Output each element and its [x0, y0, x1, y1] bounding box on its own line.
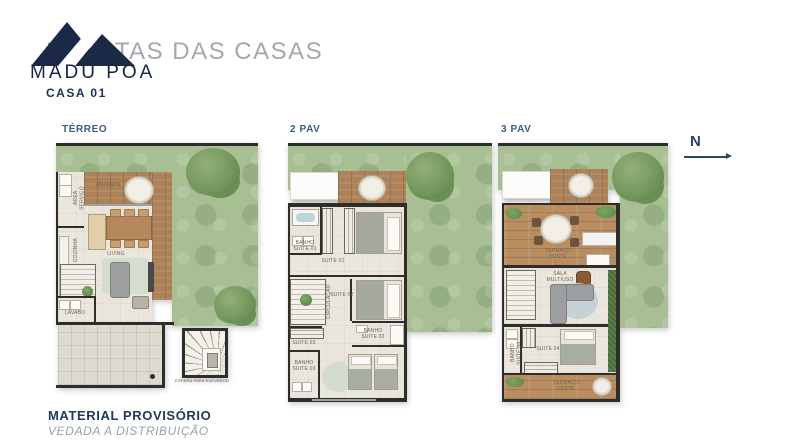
lavabo-sink	[59, 300, 70, 310]
dining-chair	[124, 209, 135, 217]
laundry-sink	[59, 185, 72, 197]
brand-name: MADU POA	[30, 62, 155, 84]
tv-console	[148, 262, 154, 292]
room-label-area-servico: ÁREA SERVIÇO	[73, 180, 81, 216]
plant	[300, 294, 312, 306]
tree	[214, 286, 256, 324]
shower	[390, 325, 404, 345]
window	[312, 399, 376, 401]
tree	[186, 148, 240, 196]
tree	[406, 152, 454, 200]
garage-floor	[58, 325, 162, 385]
terrace-chair	[532, 218, 541, 227]
kitchen-island	[88, 214, 106, 250]
wall	[58, 226, 84, 228]
room-label-suite-02: SUITE 02	[330, 292, 354, 298]
bed-suite-04	[560, 329, 596, 365]
room-label-elevator-note: ESPERA PARA ELEVADOR	[168, 378, 236, 383]
round-table	[124, 176, 154, 204]
plantas-page: PLANTAS DAS CASAS MADU POA CASA 01 TÉRRE…	[0, 0, 785, 445]
bed-suite-01	[356, 212, 402, 254]
unit-label: CASA 01	[46, 86, 107, 100]
room-label-circulacao: CIRCULAÇÃO	[326, 284, 334, 320]
wall	[56, 172, 58, 325]
wall	[352, 345, 404, 347]
dining-table	[106, 216, 152, 240]
room-label-banho-suite-03: BANHO SUITE 03	[290, 360, 318, 373]
armchair	[132, 296, 149, 309]
wall	[94, 296, 96, 322]
wall	[502, 203, 504, 402]
terrace-chair	[570, 216, 579, 225]
dining-chair	[138, 240, 149, 248]
wall	[56, 296, 96, 298]
roof-slab	[502, 171, 552, 199]
round-table	[358, 175, 386, 201]
plan-label-terreo: TÉRREO	[62, 124, 107, 135]
floorplan-terreo: ESPERA PARA ELEVADOR ÁREA SERVIÇO COZINH…	[40, 140, 270, 402]
room-label-lavabo: LAVABO	[58, 310, 92, 316]
single-bed	[348, 354, 372, 390]
wall	[318, 350, 320, 398]
dining-chair	[110, 240, 121, 248]
room-label-varanda: VARANDA	[92, 182, 124, 188]
terrace-table	[540, 214, 572, 244]
wall	[162, 325, 165, 388]
toilet	[70, 300, 81, 310]
terrace-chair	[534, 236, 543, 245]
wall	[290, 275, 404, 277]
footer-vedada: VEDADA A DISTRIBUIÇÃO	[48, 424, 209, 438]
elevator-car	[207, 353, 218, 368]
dining-chair	[138, 209, 149, 217]
north-label: N	[690, 133, 701, 150]
grill-counter	[582, 232, 618, 246]
closet	[322, 208, 333, 254]
room-label-suite-04: SUITE 04	[536, 346, 560, 352]
plan-label-2pav: 2 PAV	[290, 124, 320, 135]
dining-chair	[110, 209, 121, 217]
wall	[56, 385, 165, 388]
wall	[352, 321, 404, 323]
room-label-banho-suite-01: BANHO SUITE 01	[290, 240, 320, 253]
elevator-shaft-detail	[182, 328, 228, 378]
tree	[612, 152, 664, 202]
varanda-deck	[152, 172, 172, 300]
room-label-banho-suite-02: BANHO SUITE 02	[358, 328, 388, 341]
wall	[616, 203, 620, 402]
wall	[404, 203, 407, 402]
bathtub	[292, 209, 319, 226]
room-label-banho-suite-04: BANHO SUITE 04	[510, 336, 518, 370]
room-label-suite-01: SUITE 01	[320, 258, 346, 264]
room-label-terraco-leste: TERRAÇO LESTE	[546, 380, 586, 393]
madu-poa-logo-icon	[30, 20, 136, 66]
room-label-sala-multiuso: SALA MULTIUSO	[544, 271, 576, 284]
bed-suite-02	[356, 280, 402, 320]
closet	[344, 208, 355, 254]
room-label-living: LIVING	[96, 251, 136, 257]
sofa	[110, 262, 130, 298]
glass-door	[84, 204, 152, 206]
drain-dot	[150, 374, 155, 379]
bath-sink	[292, 382, 302, 392]
single-bed	[374, 354, 398, 390]
closet	[290, 328, 324, 339]
roof-slab	[290, 172, 340, 200]
floorplan-2pav: BANHO SUITE 01 SUITE 01 CIRCULAÇÃO SUITE…	[288, 140, 492, 402]
closet	[522, 328, 536, 348]
wall	[290, 350, 320, 352]
staircase	[506, 270, 536, 320]
round-table	[592, 377, 612, 396]
plan-label-3pav: 3 PAV	[501, 124, 531, 135]
room-label-cozinha: COZINHA	[73, 234, 81, 266]
toilet	[302, 382, 312, 392]
floorplan-3pav: TERRAÇO OESTE SALA MULTIUSO BANHO SUITE …	[498, 140, 670, 402]
north-arrowhead-icon	[726, 153, 732, 159]
wall	[290, 253, 322, 255]
planter-bush	[506, 377, 524, 387]
terrace-chair	[570, 238, 579, 247]
hedge	[608, 270, 616, 372]
round-table	[568, 173, 594, 198]
dining-chair	[124, 240, 135, 248]
north-arrow-icon	[684, 156, 728, 158]
wall	[502, 399, 618, 402]
room-label-suite-03: SUITE 03	[290, 340, 318, 346]
footer-material: MATERIAL PROVISÓRIO	[48, 408, 211, 423]
planter-bush	[506, 208, 522, 219]
sofa	[550, 284, 567, 324]
room-label-terraco-oeste: TERRAÇO OESTE	[538, 248, 578, 261]
planter-bush	[596, 206, 616, 218]
wall	[350, 279, 352, 321]
